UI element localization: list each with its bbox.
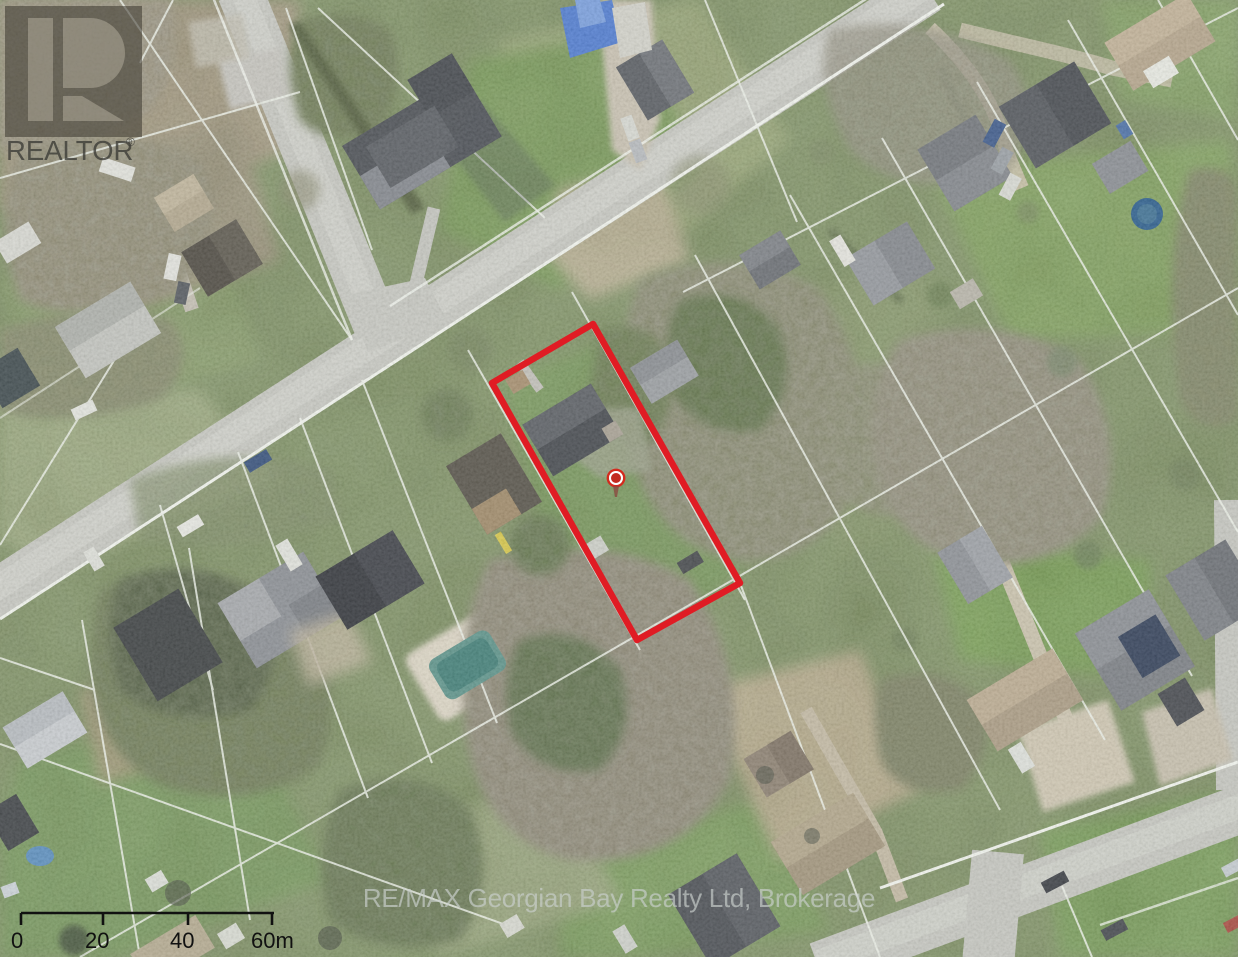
svg-text:0: 0 [11,928,23,953]
svg-text:40: 40 [170,928,194,953]
svg-text:60m: 60m [251,928,294,953]
svg-text:®: ® [126,135,135,149]
svg-text:RE/MAX Georgian Bay Realty Ltd: RE/MAX Georgian Bay Realty Ltd, Brokerag… [363,883,875,913]
svg-text:20: 20 [85,928,109,953]
svg-text:REALTOR: REALTOR [6,135,133,166]
